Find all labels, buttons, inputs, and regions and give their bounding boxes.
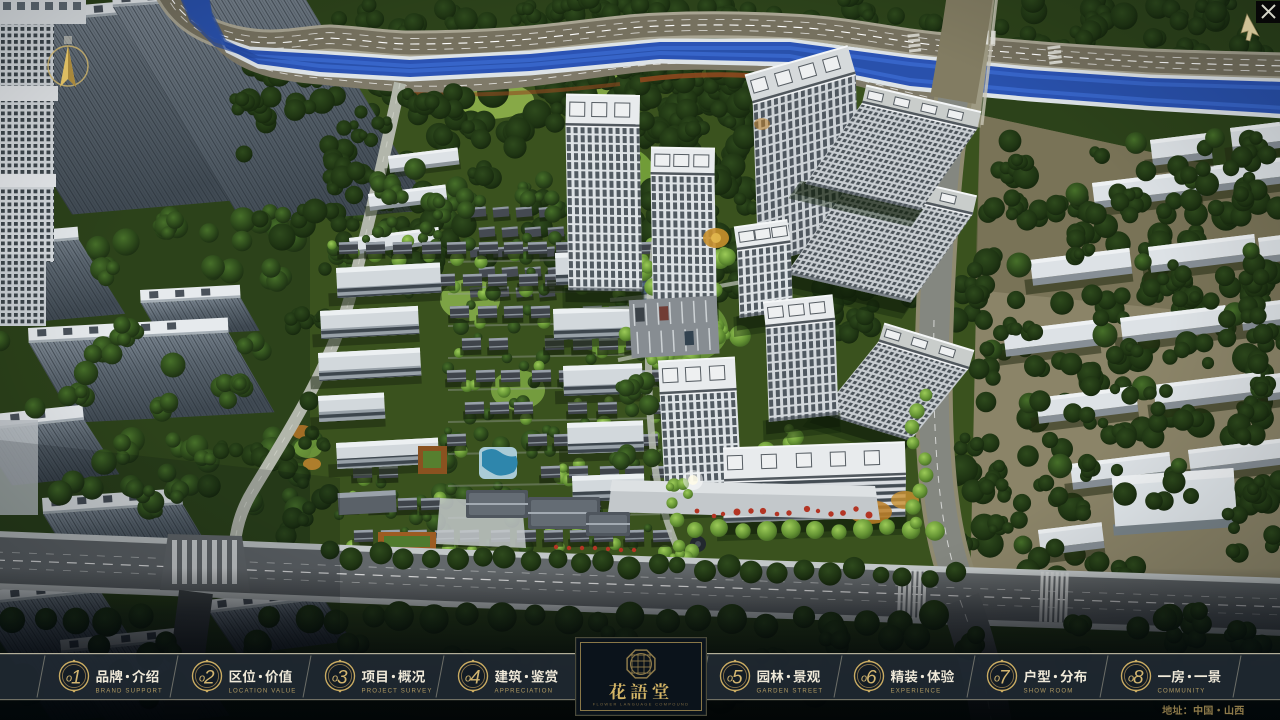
svg-text:LOCATION VALUE: LOCATION VALUE [229, 688, 297, 695]
svg-text:6: 6 [866, 668, 877, 689]
svg-text:8: 8 [1133, 668, 1144, 689]
svg-text:1: 1 [71, 668, 82, 689]
svg-text:7: 7 [999, 668, 1011, 689]
svg-text:SHOW ROOM: SHOW ROOM [1024, 688, 1074, 695]
svg-text:GARDEN STREET: GARDEN STREET [757, 688, 824, 695]
svg-text:EXPERIENCE: EXPERIENCE [891, 688, 942, 695]
svg-text:COMMUNITY: COMMUNITY [1158, 688, 1206, 695]
svg-text:APPRECIATION: APPRECIATION [495, 688, 554, 695]
svg-text:PROJECT SURVEY: PROJECT SURVEY [362, 688, 433, 695]
svg-text:FLOWER LANGUAGE COMPOUND: FLOWER LANGUAGE COMPOUND [593, 702, 690, 707]
svg-text:BRAND SUPPORT: BRAND SUPPORT [96, 688, 163, 695]
svg-text:2: 2 [203, 668, 215, 689]
svg-text:5: 5 [732, 668, 743, 689]
svg-text:4: 4 [470, 668, 481, 689]
svg-text:3: 3 [337, 668, 348, 689]
